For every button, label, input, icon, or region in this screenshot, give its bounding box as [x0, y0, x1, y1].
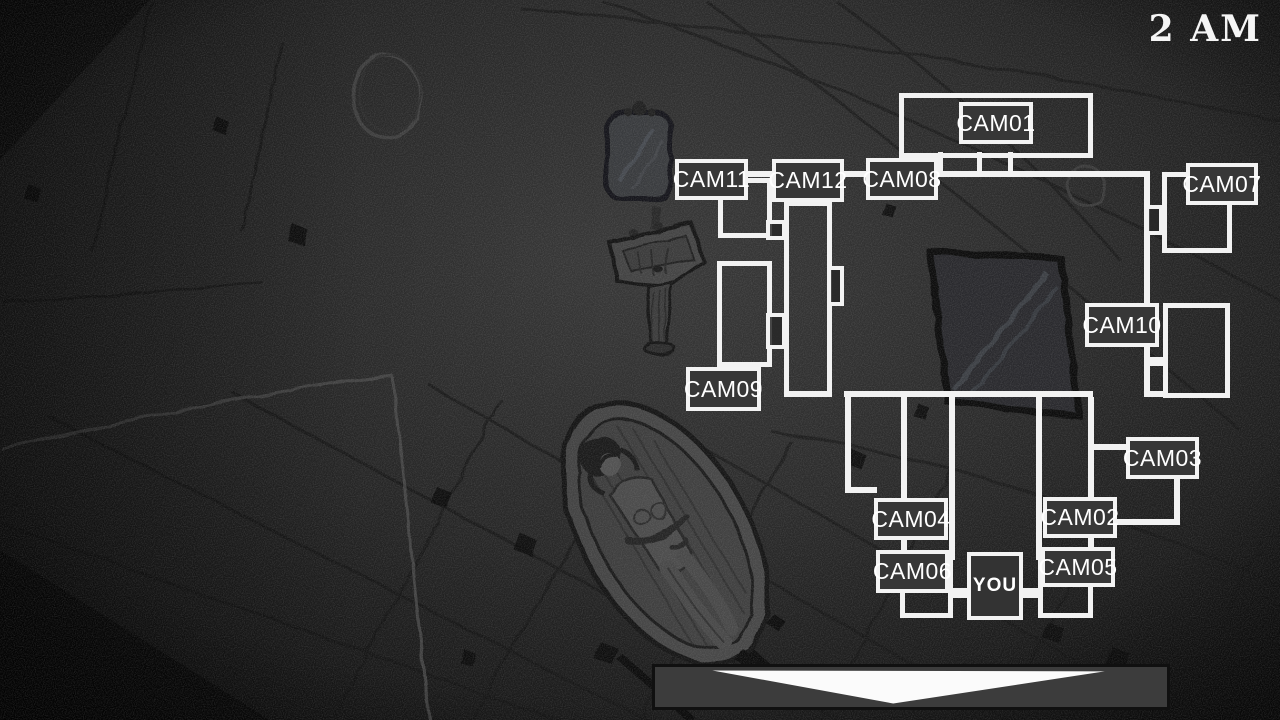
cam-button-cam12[interactable]: CAM12	[772, 159, 844, 202]
map-room	[1163, 303, 1230, 398]
map-door	[766, 313, 786, 349]
cam-button-cam08[interactable]: CAM08	[866, 158, 938, 200]
cam-button-cam01[interactable]: CAM01	[959, 102, 1033, 144]
camera-flip-arrow-icon	[655, 667, 1167, 707]
map-wall	[845, 397, 851, 490]
map-room	[717, 261, 772, 367]
clock-time: 2 AM	[1149, 8, 1262, 50]
flip-arrow-shape	[712, 670, 1104, 703]
map-door	[1145, 205, 1163, 235]
you-marker: YOU	[967, 552, 1023, 620]
camera-flip-button[interactable]	[652, 664, 1170, 710]
cam-button-cam06[interactable]: CAM06	[876, 550, 949, 593]
camera-map: CAM01CAM11CAM12CAM08CAM07CAM10CAM09CAM03…	[0, 0, 1280, 720]
game-screen: CAM01CAM11CAM12CAM08CAM07CAM10CAM09CAM03…	[0, 0, 1280, 720]
map-wall	[1144, 391, 1163, 397]
cam-button-cam04[interactable]: CAM04	[874, 498, 948, 540]
map-room	[784, 201, 832, 397]
cam-button-cam05[interactable]: CAM05	[1041, 547, 1115, 587]
map-wall	[1117, 519, 1180, 525]
map-door	[766, 220, 786, 240]
cam-button-cam10[interactable]: CAM10	[1085, 303, 1159, 347]
map-door	[827, 266, 844, 306]
map-wall	[1146, 357, 1164, 366]
map-wall	[845, 487, 877, 493]
cam-button-cam09[interactable]: CAM09	[686, 367, 761, 411]
map-wall	[1036, 397, 1042, 560]
map-wall	[844, 391, 1093, 397]
cam-button-cam11[interactable]: CAM11	[675, 159, 748, 200]
cam-button-cam02[interactable]: CAM02	[1043, 497, 1117, 538]
cam-button-cam07[interactable]: CAM07	[1186, 163, 1258, 205]
cam-button-cam03[interactable]: CAM03	[1126, 437, 1199, 479]
map-wall	[1022, 588, 1039, 598]
map-wall	[949, 397, 955, 560]
